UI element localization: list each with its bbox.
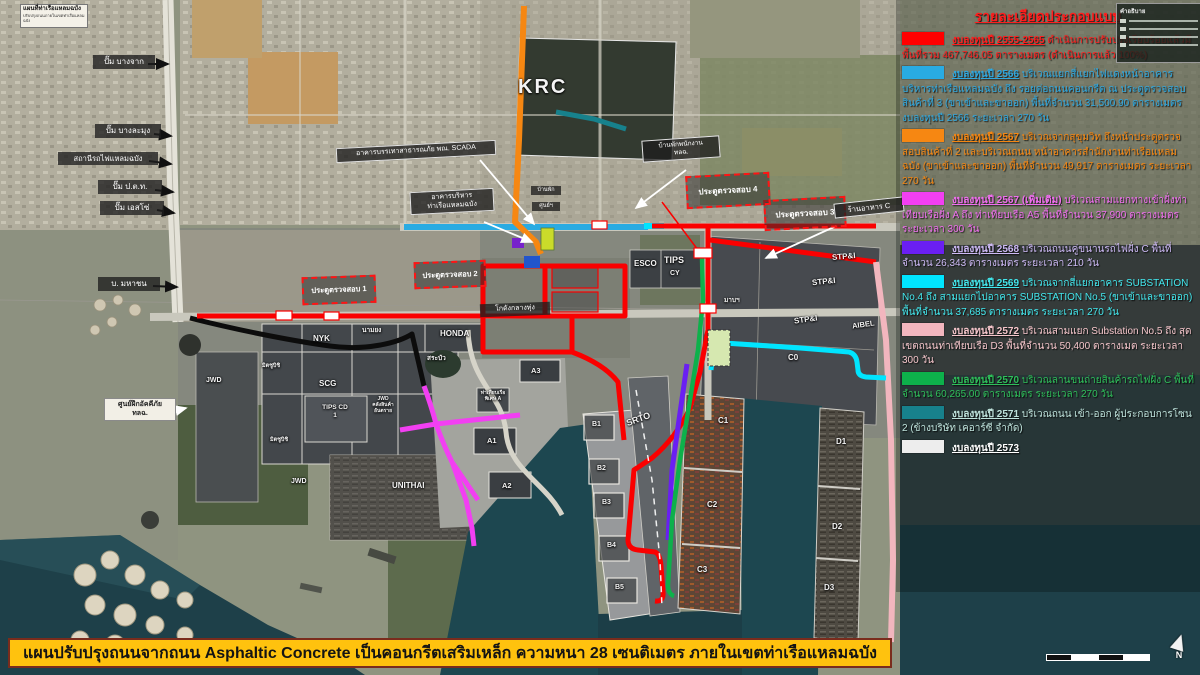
map-label-b4: B4 (607, 542, 616, 551)
map-label-namyong: นามยง (362, 327, 381, 335)
legend-swatch-red (902, 32, 944, 45)
map-label-a1: A1 (487, 436, 497, 445)
map-label-a3: A3 (531, 366, 541, 375)
mini-key-row (1120, 34, 1198, 40)
title-banner: แผนปรับปรุงถนนจากถนน Asphaltic Concrete … (8, 638, 892, 668)
mini-map-key-title: คำอธิบาย (1120, 6, 1198, 16)
legend: รายละเอียดประกอบแบบ งบลงทุนปี 2555-2565 … (902, 6, 1194, 459)
map-label-honda: HONDA (440, 329, 469, 339)
north-arrow-icon: N (1172, 634, 1186, 660)
legend-swatch-teal (902, 406, 944, 419)
legend-item-orange: งบลงทุนปี 2567 บริเวณจากสุขุมวิท ถึงหน้า… (902, 129, 1194, 189)
map-label-a2: A2 (502, 481, 512, 490)
checkpoint-2-box: ประตูตรวจสอบ 2 (414, 260, 487, 289)
map-label-company: บ. มหาชน (98, 277, 160, 291)
legend-item-purple: งบลงทุนปี 2568 บริเวณถนนคู่ขนานรถไฟฝั่ง … (902, 241, 1194, 272)
map-label-nyk: NYK (313, 334, 330, 344)
map-label-railway-station: สถานีรถไฟแหลมฉบัง (58, 152, 158, 165)
legend-swatch-purple (902, 241, 944, 254)
legend-item-pink: งบลงทุนปี 2572 บริเวณสามแยก Substation N… (902, 323, 1194, 369)
map-label-b2: B2 (597, 465, 606, 474)
map-label-mitsubishi-1: มิตซูบิชิ (262, 363, 280, 370)
map-label-pump-banglamung: ปั๊ม บางละมุง (95, 124, 161, 138)
map-label-esco: ESCO (634, 259, 657, 269)
map-label-special-berth-a: ท่าเทียบเรือ พิเศษ A (476, 390, 510, 402)
map-label-unithai: UNITHAI (392, 481, 424, 491)
map-label-pump-ptt: ปั๊ม ป.ต.ท. (98, 180, 162, 194)
checkpoint-3-label: ประตูตรวจสอบ 3 (775, 205, 835, 221)
map-label-housing: บ้านพัก (531, 186, 561, 195)
checkpoint-4-box: ประตูตรวจสอบ 4 (685, 172, 771, 209)
legend-item-blue: งบลงทุนปี 2566 บริเวณแยกสี่แยกไฟแดงหน้าอ… (902, 66, 1194, 126)
mini-key-row (1120, 18, 1198, 24)
checkpoint-1-box: ประตูตรวจสอบ 1 (302, 275, 377, 306)
port-map-screenshot: แผนที่ท่าเรือแหลมฉบัง ปรับปรุงถนนภายในเข… (0, 0, 1200, 675)
mini-map-key: คำอธิบาย (1116, 3, 1200, 63)
legend-swatch-orange (902, 129, 944, 142)
inset-subtitle: ปรับปรุงถนนภายในเขตท่าเรือแหลมฉบัง (23, 13, 85, 23)
map-label-jwd-1: JWD (206, 377, 222, 386)
map-label-jwd-2: JWD (291, 478, 307, 487)
map-label-mab: มาบฯ (724, 297, 740, 305)
map-label-c0: C0 (788, 353, 798, 363)
map-label-b5: B5 (615, 584, 624, 593)
legend-swatch-blue (902, 66, 944, 79)
map-label-d1: D1 (836, 437, 846, 447)
title-banner-text: แผนปรับปรุงถนนจากถนน Asphaltic Concrete … (23, 641, 877, 666)
map-label-lotus-pond: สระบัว (427, 355, 446, 363)
map-label-b1: B1 (592, 421, 601, 430)
legend-swatch-green (902, 372, 944, 385)
map-label-center: ศูนย์ฯ (532, 202, 560, 211)
map-label-admin-building: อาคารบริหาร ท่าเรือแหลมฉบัง (409, 188, 494, 215)
map-label-tips: TIPS (664, 255, 684, 266)
map-label-midfield-warehouse: โกดังกลางทุ่ง (480, 302, 550, 317)
legend-item-cyan: งบลงทุนปี 2569 บริเวณจากสี่แยกอาคาร SUBS… (902, 275, 1194, 321)
map-label-stpi-1: STP&I (832, 251, 856, 263)
mini-key-row (1120, 26, 1198, 32)
map-label-mitsubishi-2: มิตซูบิชิ (270, 437, 288, 444)
checkpoint-1-label: ประตูตรวจสอบ 1 (311, 283, 367, 297)
map-label-c2: C2 (707, 500, 717, 510)
map-label-d2: D2 (832, 522, 842, 532)
map-label-jwd-dangerous-goods: JWD คลังสินค้า อันตราย (370, 396, 396, 414)
map-label-d3: D3 (824, 583, 834, 593)
legend-swatch-pink (902, 323, 944, 336)
north-label: N (1176, 650, 1183, 660)
legend-item-white: งบลงทุนปี 2573 (902, 440, 1194, 457)
map-label-pump-esso: ปั๊ม เอสโซ่ (100, 201, 164, 215)
map-label-c3: C3 (697, 565, 707, 575)
map-label-scg: SCG (319, 379, 336, 389)
inset-title: แผนที่ท่าเรือแหลมฉบัง (23, 6, 85, 13)
legend-swatch-cyan (902, 275, 944, 288)
map-label-c1: C1 (718, 416, 728, 426)
legend-item-green: งบลงทุนปี 2570 บริเวณลานขนถ่ายสินค้ารถไฟ… (902, 372, 1194, 403)
legend-swatch-magenta (902, 192, 944, 205)
scale-bar (1046, 654, 1150, 661)
map-label-cy: CY (670, 270, 680, 279)
inset-map-title-box: แผนที่ท่าเรือแหลมฉบัง ปรับปรุงถนนภายในเข… (20, 4, 88, 28)
map-label-pump-bangchak: ปั๊ม บางจาก (93, 55, 155, 69)
checkpoint-4-label: ประตูตรวจสอบ 4 (698, 182, 758, 198)
legend-swatch-white (902, 440, 944, 453)
checkpoint-2-label: ประตูตรวจสอบ 2 (422, 268, 478, 282)
map-label-b3: B3 (602, 499, 611, 508)
legend-item-teal: งบลงทุนปี 2571 บริเวณถนน เข้า-ออก ผู้ประ… (902, 406, 1194, 437)
legend-item-magenta: งบลงทุนปี 2567 (เพิ่มเติม) บริเวณสามแยกท… (902, 192, 1194, 238)
map-label-tips-cd: TIPS CD 1 (315, 404, 355, 420)
map-label-krc: KRC (518, 75, 567, 99)
mini-key-row (1120, 42, 1198, 48)
map-label-fire-training-center: ศูนย์ฝึกอัคคีภัย ทลฉ. (104, 398, 176, 421)
